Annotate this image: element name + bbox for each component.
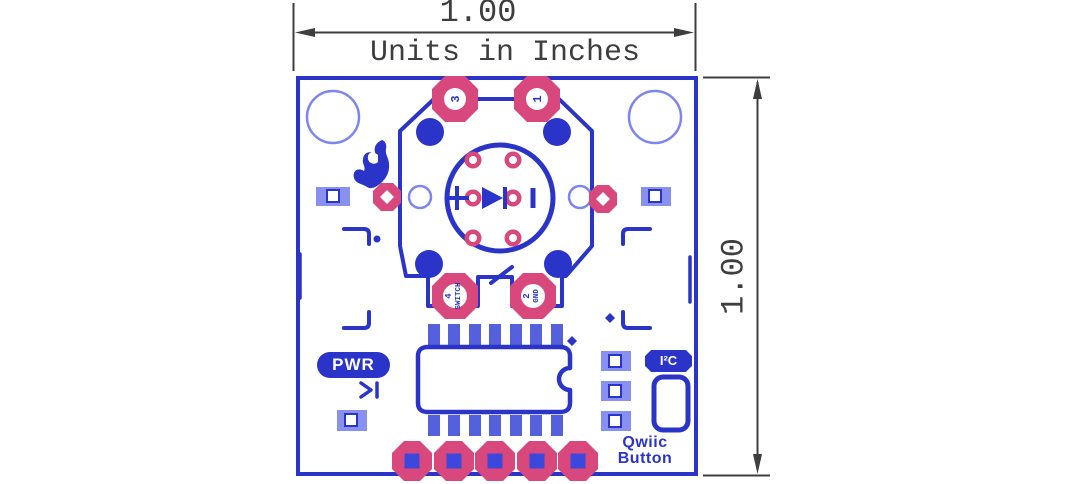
dot-mark [374, 236, 381, 243]
height-dimension-value: 1.00 [716, 197, 753, 357]
pad-4-switch: 4 SWITCH [432, 273, 478, 319]
pad-2-name: GND [533, 289, 541, 303]
board-name-line1: Qwiic [595, 435, 695, 451]
units-note: Units in Inches [345, 36, 665, 70]
width-dimension-value: 1.00 [398, 0, 558, 31]
drawing-artwork: 3 1 4 SWITCH 2 GND [0, 0, 1080, 484]
smd-pad-right-column-1 [601, 351, 631, 371]
smd-pad-left-upper [316, 187, 350, 206]
pad-4-number: 4 [444, 293, 454, 299]
qwiic-connector-outline [654, 377, 688, 430]
smd-pad-right-upper [641, 187, 671, 206]
pad-2-number: 2 [522, 293, 532, 298]
arrow-left-icon [295, 28, 315, 37]
i2c-label: I²C [645, 350, 692, 372]
pad-3: 3 [432, 76, 478, 122]
pad-2-gnd: 2 GND [510, 273, 556, 319]
board-name: Qwiic Button [595, 435, 695, 467]
smd-pad-bottom-left [337, 410, 367, 431]
board-name-line2: Button [595, 451, 695, 467]
pcb-dimension-drawing: 3 1 4 SWITCH 2 GND [0, 0, 1080, 484]
smd-pad-right-column-3 [601, 411, 631, 431]
pad-1-label: 1 [531, 95, 545, 102]
arrow-right-icon [674, 28, 694, 37]
pad-4-name: SWITCH [455, 282, 463, 309]
pad-3-label: 3 [449, 95, 463, 102]
bottom-header-pads [392, 441, 598, 481]
arrow-up-icon [753, 79, 762, 99]
pwr-label: PWR [317, 352, 390, 378]
arrow-down-icon [753, 454, 762, 474]
ic-body-outline [418, 347, 570, 412]
smd-pad-right-column-2 [601, 381, 631, 401]
pad-1: 1 [514, 76, 560, 122]
